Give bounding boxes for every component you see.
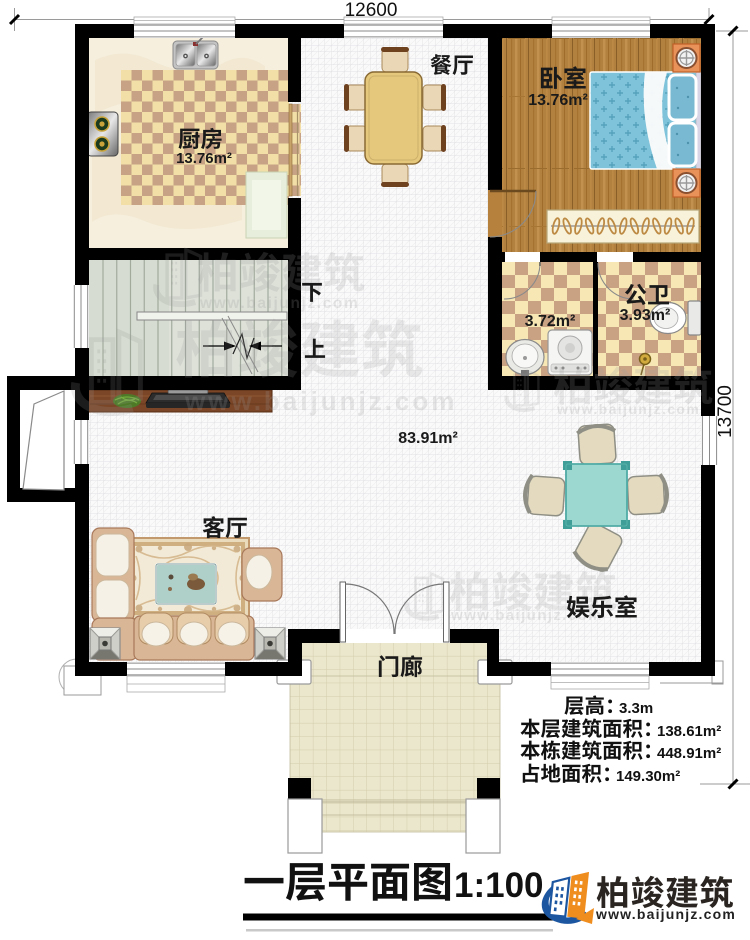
svg-text:3.72m²: 3.72m²	[525, 313, 576, 330]
svg-text:www.baijunjz.com: www.baijunjz.com	[595, 906, 736, 922]
svg-text:13700: 13700	[715, 385, 736, 438]
svg-text:www.baijunjz.com: www.baijunjz.com	[199, 295, 359, 312]
svg-text:3.3m: 3.3m	[619, 700, 653, 717]
svg-text:www.baijunjz.com: www.baijunjz.com	[184, 386, 457, 416]
svg-text:13.76m²: 13.76m²	[176, 150, 232, 167]
svg-text:www.baijunjz.com: www.baijunjz.com	[556, 401, 700, 417]
svg-text:3.93m²: 3.93m²	[620, 307, 671, 324]
svg-text:149.30m²: 149.30m²	[616, 768, 680, 785]
svg-text:1:100: 1:100	[454, 866, 544, 905]
svg-text:138.61m²: 138.61m²	[657, 723, 721, 740]
svg-text:13.76m²: 13.76m²	[528, 92, 588, 109]
svg-text:83.91m²: 83.91m²	[398, 430, 458, 447]
svg-text:448.91m²: 448.91m²	[657, 745, 721, 762]
